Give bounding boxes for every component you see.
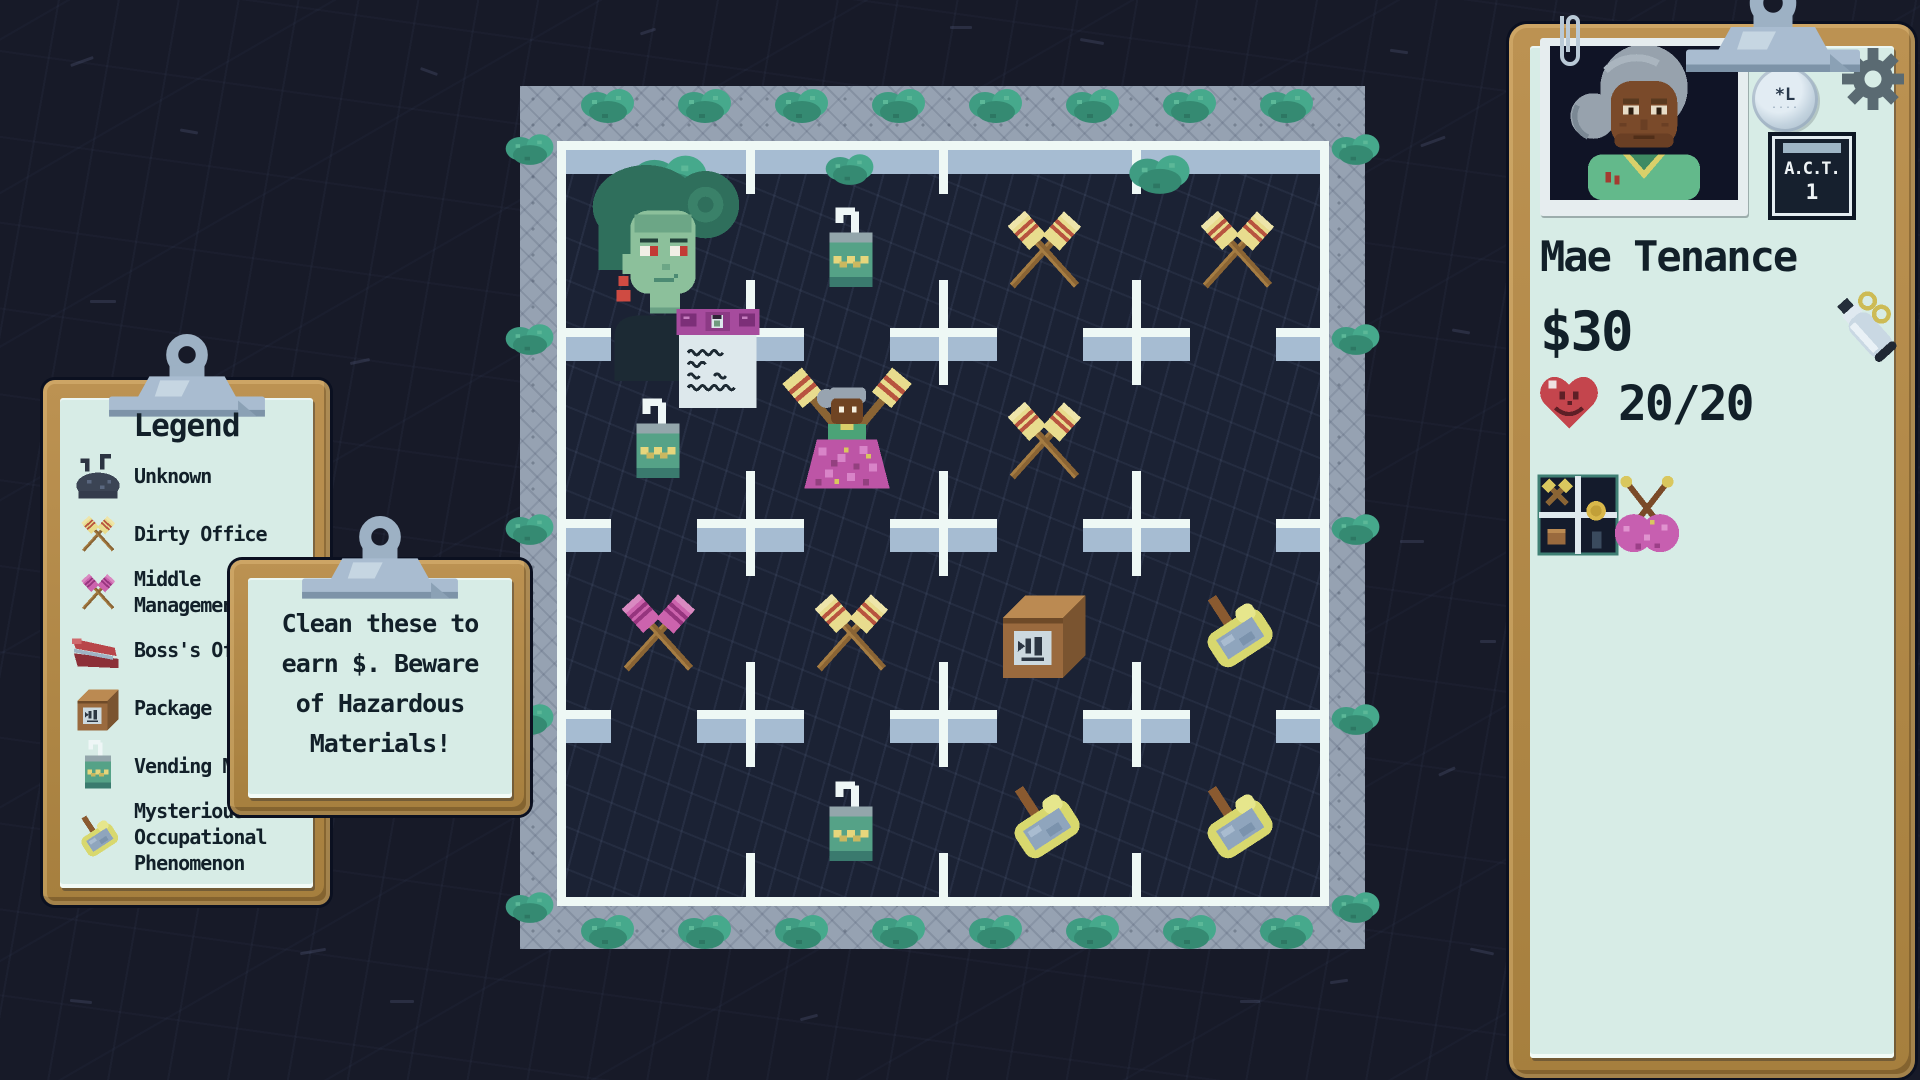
bush-icon — [868, 80, 930, 124]
legend-title: Legend — [60, 408, 313, 444]
scratch-mark — [1420, 136, 1445, 148]
dirty-office-icon — [985, 194, 1103, 306]
bush-icon — [503, 884, 557, 924]
legend-item-label: Unknown — [134, 463, 211, 489]
unknown-blob-icon — [72, 450, 124, 502]
scratch-mark — [950, 26, 972, 29]
tooltip-clip-icon — [294, 518, 466, 604]
scratch-mark — [1080, 38, 1104, 45]
scratch-mark — [1480, 640, 1496, 643]
mop-icon — [998, 778, 1090, 870]
character-name: Mae Tenance — [1540, 232, 1796, 281]
bush-icon — [577, 80, 639, 124]
legend-item: Unknown — [72, 450, 317, 502]
bush-icon — [1329, 316, 1383, 356]
legend-item-label: Dirty Office — [134, 521, 267, 547]
act-badge: A.C.T. 1 — [1768, 132, 1856, 220]
scratch-mark — [800, 1014, 818, 1022]
bush-icon — [503, 316, 557, 356]
knitting-icon[interactable] — [1606, 484, 1688, 556]
dirty-office-icon — [72, 508, 124, 560]
board-cell-r2c3[interactable] — [952, 341, 1136, 523]
board-cell-r3c2[interactable] — [759, 533, 943, 715]
legend-item-label: Package — [134, 695, 211, 721]
player-character[interactable] — [771, 371, 923, 505]
dirty-office-icon — [792, 577, 910, 689]
board-cell-r4c4[interactable] — [1145, 724, 1329, 906]
scratch-mark — [1240, 1000, 1260, 1003]
vending-machine-icon — [627, 398, 689, 484]
bush-icon — [1329, 126, 1383, 166]
memo-note[interactable] — [675, 309, 765, 411]
scratch-mark — [70, 999, 92, 1004]
package-icon — [991, 588, 1097, 678]
bush-icon — [503, 506, 557, 546]
board-cell-r2c4[interactable] — [1145, 341, 1329, 523]
scratch-mark — [390, 1000, 414, 1003]
tooltip-line: Materials! — [248, 724, 512, 764]
bush-icon — [1329, 506, 1383, 546]
vending-machine-icon — [820, 781, 882, 867]
board-cell-r1c3[interactable] — [952, 150, 1136, 332]
legend-item: Dirty Office — [72, 508, 317, 560]
mop-icon — [72, 811, 124, 863]
scratch-mark — [1390, 49, 1408, 54]
tooltip-text: Clean these to earn $. Beware of Hazardo… — [248, 604, 512, 764]
money-value: $30 — [1540, 300, 1632, 363]
middle-management-icon — [599, 577, 717, 689]
scratch-mark — [90, 300, 116, 303]
bush-icon — [1329, 884, 1383, 924]
scratch-mark — [420, 67, 438, 76]
bush-icon — [965, 80, 1027, 124]
bush-icon — [577, 906, 639, 950]
tooltip-line: earn $. Beware — [248, 644, 512, 684]
bush-icon — [771, 906, 833, 950]
spray-bottle-icon — [1826, 290, 1908, 372]
scratch-mark — [70, 56, 94, 67]
scratch-mark — [1470, 948, 1494, 956]
board-cell-r4c3[interactable] — [952, 724, 1136, 906]
scratch-mark — [300, 948, 326, 955]
bush-icon — [503, 126, 557, 166]
scratch-mark — [350, 358, 370, 365]
heart-icon — [1536, 370, 1602, 432]
scratch-mark — [640, 28, 656, 36]
bush-icon — [674, 80, 736, 124]
board-cell-r4c1[interactable] — [566, 724, 750, 906]
bush-icon — [1256, 906, 1318, 950]
sidebar-clip-icon — [1678, 0, 1868, 78]
board-cell-r4c2[interactable] — [759, 724, 943, 906]
game-screen: Legend Unknown Dirty Office Middle Manag… — [0, 0, 1920, 1080]
pin-badge-dots: .... — [1771, 102, 1799, 110]
paperclip-icon — [1550, 10, 1590, 76]
inventory-row — [1538, 476, 1688, 556]
bush-icon — [1124, 145, 1196, 195]
bush-icon — [868, 906, 930, 950]
mop-icon — [1191, 587, 1283, 679]
bush-icon — [674, 906, 736, 950]
game-board — [557, 141, 1329, 906]
bush-icon — [1329, 696, 1383, 736]
bush-icon — [965, 906, 1027, 950]
mop-icon — [1191, 778, 1283, 870]
dirty-office-icon — [985, 385, 1103, 497]
bush-icon — [1062, 906, 1124, 950]
scratch-mark — [1438, 766, 1456, 776]
tooltip-line: Clean these to — [248, 604, 512, 644]
scratch-mark — [1400, 540, 1424, 543]
middle-management-icon — [72, 566, 124, 618]
act-badge-strip — [1783, 143, 1841, 153]
bush-icon — [1159, 80, 1221, 124]
board-frame — [520, 86, 1365, 949]
scratch-mark — [1452, 328, 1470, 334]
dirty-office-icon — [1178, 194, 1296, 306]
board-cell-r3c1[interactable] — [566, 533, 750, 715]
act-badge-label: A.C.T. — [1784, 159, 1839, 179]
scratch-mark — [1330, 979, 1348, 984]
tooltip-line: of Hazardous — [248, 684, 512, 724]
scratch-mark — [180, 128, 198, 134]
board-cell-r3c4[interactable] — [1145, 533, 1329, 715]
package-icon — [72, 682, 124, 734]
vending-machine-icon — [820, 207, 882, 293]
bush-icon — [771, 80, 833, 124]
bush-icon — [1062, 80, 1124, 124]
health-value: 20/20 — [1618, 376, 1753, 432]
act-badge-number: 1 — [1806, 180, 1819, 204]
boss-office-icon — [72, 624, 124, 676]
bush-icon — [1159, 906, 1221, 950]
bush-icon — [823, 146, 877, 186]
vending-machine-icon — [72, 740, 124, 792]
bush-icon — [1256, 80, 1318, 124]
board-cell-r3c3[interactable] — [952, 533, 1136, 715]
